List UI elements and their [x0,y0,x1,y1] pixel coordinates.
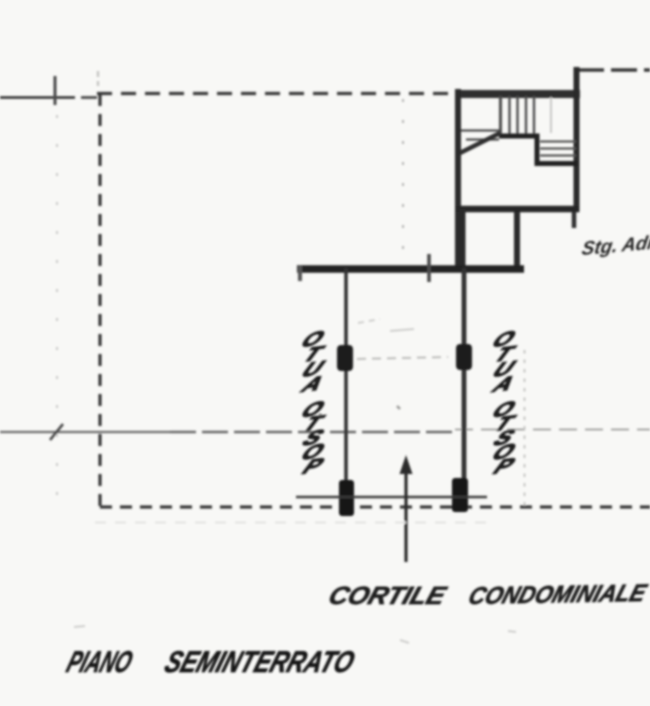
svg-text:CORTILE: CORTILE [325,583,450,610]
svg-text:PIANO: PIANO [63,645,137,679]
svg-text:SEMINTERRATO: SEMINTERRATO [161,645,359,679]
svg-text:CONDOMINIALE: CONDOMINIALE [465,580,650,610]
